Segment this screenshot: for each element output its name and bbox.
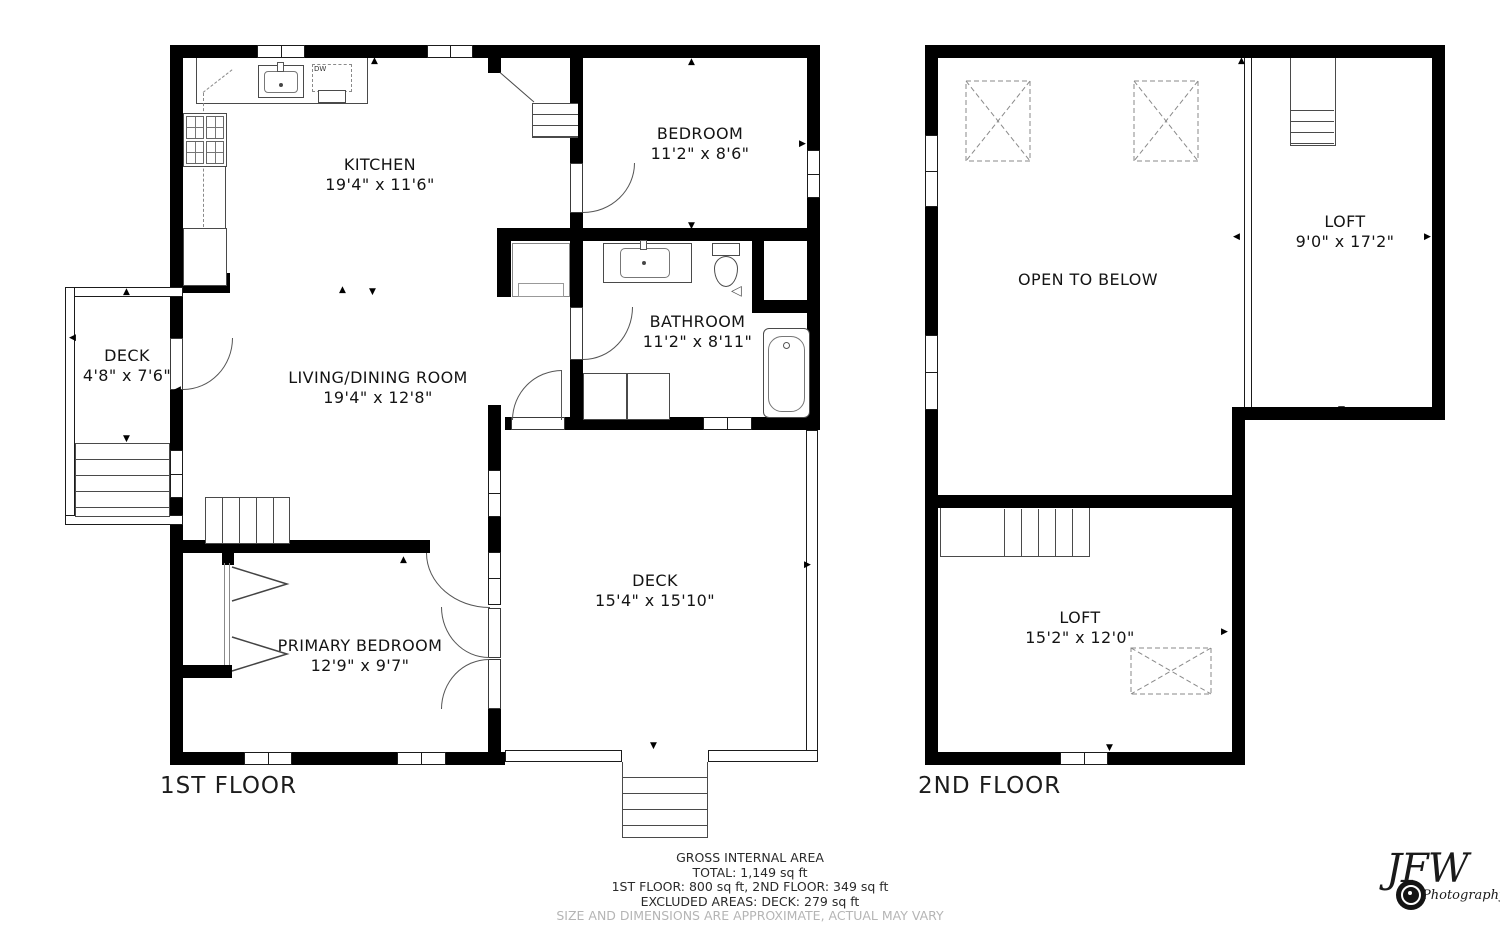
- door-swing: [183, 338, 233, 390]
- burner-icon: [206, 141, 224, 164]
- room-dims: 15'2" x 12'0": [955, 628, 1205, 648]
- exterior-stairs: [622, 762, 708, 838]
- direction-arrow-icon: ▶: [804, 561, 811, 570]
- direction-arrow-icon: ▲: [400, 556, 407, 565]
- direction-arrow-icon: ▲: [688, 58, 695, 67]
- second-floor-title: 2ND FLOOR: [918, 773, 1061, 799]
- direction-arrow-icon: ◀: [926, 628, 933, 637]
- skylight-icon: [1130, 647, 1212, 695]
- window: [244, 752, 292, 765]
- direction-arrow-icon: ▲: [1238, 57, 1245, 66]
- room-dims: 12'9" x 9'7": [240, 656, 480, 676]
- wall: [497, 228, 583, 241]
- area-excluded: EXCLUDED AREAS: DECK: 279 sq ft: [450, 895, 1050, 910]
- direction-arrow-icon: ▶: [799, 140, 806, 149]
- wall: [488, 709, 501, 765]
- direction-arrow-icon: ◀: [1233, 233, 1240, 242]
- drain-dot: [279, 83, 283, 87]
- room-label-kitchen: KITCHEN 19'4" x 11'6": [280, 155, 480, 195]
- bifold-door-icon: [231, 566, 291, 604]
- camera-lens-highlight: [1408, 891, 1412, 895]
- direction-arrow-icon: ▼: [682, 419, 689, 428]
- direction-arrow-icon: ◀: [172, 184, 179, 193]
- wall: [1232, 407, 1245, 765]
- door-leaf: [570, 163, 583, 213]
- direction-arrow-icon: ▼: [369, 288, 376, 297]
- room-label-bedroom: BEDROOM 11'2" x 8'6": [605, 124, 795, 164]
- washer: [583, 373, 627, 420]
- direction-arrow-icon: ▼: [123, 435, 130, 444]
- wall: [752, 241, 764, 307]
- area-total: TOTAL: 1,149 sq ft: [450, 866, 1050, 881]
- wall: [570, 241, 583, 307]
- area-by-floor: 1ST FLOOR: 800 sq ft, 2ND FLOOR: 349 sq …: [450, 880, 1050, 895]
- deck-rail: [708, 750, 818, 762]
- room-dims: 9'0" x 17'2": [1255, 232, 1435, 252]
- room-label-deck-side: DECK 4'8" x 7'6": [68, 346, 186, 386]
- door-swing: [426, 553, 490, 608]
- room-label-living: LIVING/DINING ROOM 19'4" x 12'8": [253, 368, 503, 408]
- faucet-icon: [640, 240, 647, 250]
- burner-icon: [186, 141, 204, 164]
- wall: [488, 517, 501, 552]
- window: [1060, 752, 1108, 765]
- deck-rail: [806, 430, 818, 762]
- room-dims: 19'4" x 11'6": [280, 175, 480, 195]
- room-name: PRIMARY BEDROOM: [240, 636, 480, 656]
- wall: [570, 228, 820, 241]
- room-dims: 15'4" x 15'10": [540, 591, 770, 611]
- door-swing: [583, 163, 635, 213]
- wall: [1245, 407, 1445, 420]
- refrigerator: [183, 228, 227, 286]
- room-label-primary: PRIMARY BEDROOM 12'9" x 9'7": [240, 636, 480, 676]
- room-dims: 11'2" x 8'11": [600, 332, 795, 352]
- wall: [925, 495, 1245, 508]
- direction-arrow-icon: ▶: [571, 391, 578, 400]
- dryer: [627, 373, 670, 420]
- door-leaf: [488, 608, 501, 658]
- room-label-bathroom: BATHROOM 11'2" x 8'11": [600, 312, 795, 352]
- room-name: DECK: [540, 571, 770, 591]
- stair-treads: [988, 509, 1088, 556]
- direction-arrow-icon: ◀: [69, 334, 76, 343]
- room-name: OPEN TO BELOW: [958, 270, 1218, 290]
- skylight-icon: [1133, 80, 1199, 162]
- photographer-logo: JFW Photography: [1378, 844, 1496, 930]
- stair-diagonal: [500, 72, 535, 102]
- wall: [170, 45, 183, 765]
- direction-arrow-icon: ◀: [174, 386, 181, 395]
- window: [257, 45, 305, 58]
- deck-rail: [65, 287, 75, 525]
- room-name: LIVING/DINING ROOM: [253, 368, 503, 388]
- wall: [488, 405, 501, 470]
- direction-arrow-icon: ▲: [123, 288, 130, 297]
- deck-stairs: [75, 443, 170, 517]
- window: [925, 335, 938, 410]
- door-swing: [512, 370, 562, 420]
- window: [170, 450, 183, 498]
- closet-front-line: [224, 563, 225, 665]
- room-name: BEDROOM: [605, 124, 795, 144]
- room-dims: 19'4" x 12'8": [253, 388, 503, 408]
- kitchen-sink-basin: [264, 71, 298, 93]
- direction-arrow-icon: ◀: [575, 140, 582, 149]
- room-name: KITCHEN: [280, 155, 480, 175]
- direction-arrow-icon: ▲: [1106, 500, 1113, 509]
- door-leaf: [570, 307, 583, 360]
- loft-railing: [1244, 58, 1252, 407]
- window: [807, 150, 820, 198]
- area-summary: GROSS INTERNAL AREA TOTAL: 1,149 sq ft 1…: [450, 851, 1050, 924]
- faucet-icon: [277, 62, 284, 72]
- counter-edge: [196, 103, 367, 104]
- window: [703, 417, 752, 430]
- window: [925, 135, 938, 207]
- counter-edge: [196, 58, 197, 104]
- skylight-icon: [965, 80, 1031, 162]
- burner-icon: [186, 116, 204, 139]
- first-floor-title: 1ST FLOOR: [160, 773, 297, 799]
- drain-dot: [642, 261, 646, 265]
- floor-plan-page: DW ◁ KITCHEN 19'4" x 1: [0, 0, 1500, 937]
- direction-arrow-icon: ▼: [1106, 744, 1113, 753]
- area-summary-heading: GROSS INTERNAL AREA: [450, 851, 1050, 866]
- stair-treads: [1291, 100, 1334, 145]
- room-name: BATHROOM: [600, 312, 795, 332]
- direction-arrow-icon: ▼: [688, 222, 695, 231]
- logo-word: Photography: [1422, 888, 1500, 903]
- disclaimer: SIZE AND DIMENSIONS ARE APPROXIMATE, ACT…: [450, 909, 1050, 924]
- room-name: DECK: [68, 346, 186, 366]
- counter-dashed-line: [203, 69, 233, 93]
- direction-arrow-icon: ▼: [1338, 406, 1345, 415]
- room-label-loft-upper: LOFT 9'0" x 17'2": [1255, 212, 1435, 252]
- toilet-tank: [712, 243, 740, 256]
- room-dims: 4'8" x 7'6": [68, 366, 186, 386]
- window: [397, 752, 446, 765]
- fixture-triangle-icon: ◁: [731, 287, 742, 296]
- direction-arrow-icon: ▶: [1424, 233, 1431, 242]
- wall: [488, 58, 501, 73]
- room-dims: 11'2" x 8'6": [605, 144, 795, 164]
- burner-icon: [206, 116, 224, 139]
- direction-arrow-icon: ▼: [338, 541, 345, 550]
- direction-arrow-icon: ▶: [1221, 628, 1228, 637]
- direction-arrow-icon: ▼: [650, 742, 657, 751]
- wall: [180, 665, 232, 678]
- closet-front-line: [229, 563, 230, 665]
- window: [427, 45, 473, 58]
- direction-arrow-icon: ▲: [371, 57, 378, 66]
- window: [488, 470, 501, 517]
- room-label-deck-rear: DECK 15'4" x 15'10": [540, 571, 770, 611]
- camera-lens-ring: [1401, 885, 1421, 905]
- winder-stairs: [532, 103, 578, 138]
- door-leaf: [488, 659, 501, 709]
- wall: [170, 752, 505, 765]
- dishwasher-label: DW: [314, 65, 326, 73]
- room-label-open-to-below: OPEN TO BELOW: [958, 270, 1218, 290]
- stairs-to-loft: [205, 497, 290, 544]
- room-name: LOFT: [955, 608, 1205, 628]
- deck-rail: [505, 750, 622, 762]
- hall-closet-shelf: [518, 283, 564, 297]
- dishwasher-front: [318, 90, 346, 103]
- direction-arrow-icon: ▲: [339, 286, 346, 295]
- room-label-loft-lower: LOFT 15'2" x 12'0": [955, 608, 1205, 648]
- direction-arrow-icon: ▼: [339, 755, 346, 764]
- counter-edge: [367, 58, 368, 104]
- room-name: LOFT: [1255, 212, 1435, 232]
- wall: [925, 45, 1445, 58]
